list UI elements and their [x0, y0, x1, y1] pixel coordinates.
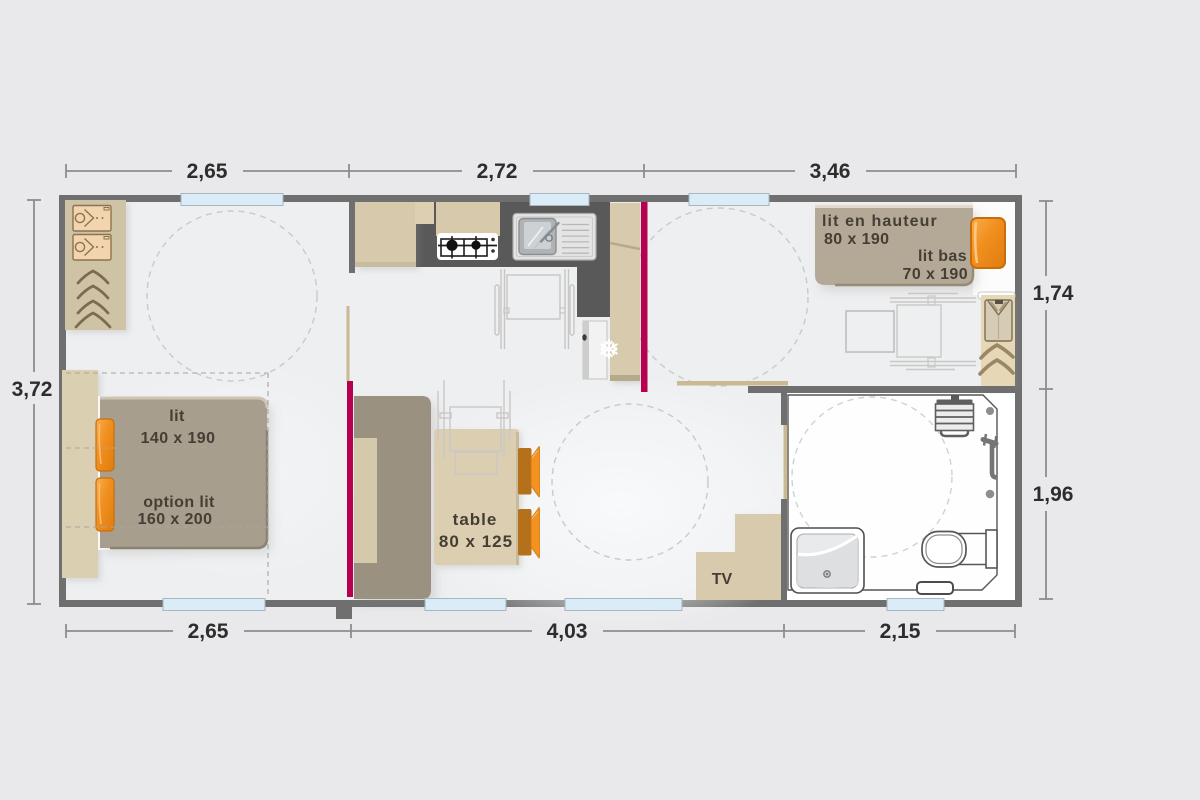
svg-text:TV: TV — [712, 571, 733, 588]
svg-text:3,46: 3,46 — [810, 160, 851, 183]
svg-text:table: table — [453, 510, 498, 529]
svg-text:2,65: 2,65 — [188, 620, 229, 643]
svg-text:80 x 190: 80 x 190 — [824, 231, 889, 248]
svg-text:2,15: 2,15 — [880, 620, 921, 643]
svg-text:160 x 200: 160 x 200 — [138, 511, 213, 528]
svg-text:4,03: 4,03 — [547, 620, 588, 643]
svg-text:2,65: 2,65 — [187, 160, 228, 183]
svg-text:1,74: 1,74 — [1033, 282, 1074, 305]
svg-text:1,96: 1,96 — [1033, 483, 1074, 506]
svg-text:lit: lit — [169, 408, 185, 425]
svg-text:2,72: 2,72 — [477, 160, 518, 183]
svg-text:80 x 125: 80 x 125 — [439, 532, 513, 551]
svg-text:option lit: option lit — [143, 494, 215, 511]
svg-text:3,72: 3,72 — [12, 378, 53, 401]
svg-text:lit en hauteur: lit en hauteur — [822, 213, 938, 230]
svg-text:70 x 190: 70 x 190 — [903, 266, 968, 283]
svg-text:140 x 190: 140 x 190 — [141, 430, 216, 447]
svg-text:lit bas: lit bas — [918, 248, 967, 265]
